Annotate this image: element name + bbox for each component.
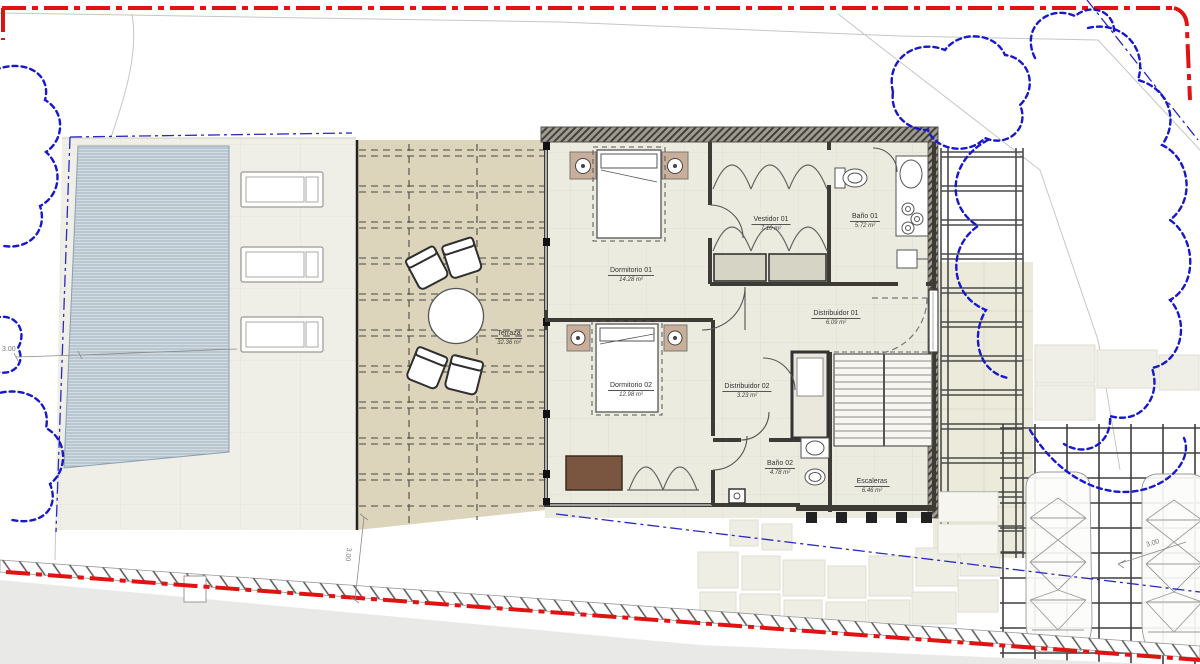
- plan-drawing: [0, 0, 1200, 664]
- room-name: Baño 02: [765, 460, 795, 469]
- gate-post: [184, 576, 206, 602]
- room-area: 6.46 m²: [855, 487, 890, 495]
- corridor-window: [929, 290, 938, 352]
- room-name: Dormitorio 01: [608, 267, 654, 276]
- house: [541, 127, 938, 523]
- tree-top-left: [0, 66, 60, 247]
- dimension-west: 3.00: [2, 346, 16, 353]
- room-area: 4.78 m²: [765, 469, 795, 477]
- room-name: Vestidor 01: [751, 216, 790, 225]
- room-name: Escaleras: [855, 478, 890, 487]
- garden-panels: [1035, 345, 1199, 420]
- room-name: Baño 01: [850, 213, 880, 222]
- site-plan-canvas: Terraza 32.36 m² Dormitorio 01 14.28 m² …: [0, 0, 1200, 664]
- room-area: 7.10 m²: [751, 225, 790, 233]
- north-wall: [541, 127, 938, 142]
- room-area: 32.36 m²: [495, 339, 522, 347]
- tree-bottom-left: [0, 391, 63, 521]
- room-area: 6.09 m²: [811, 319, 860, 327]
- sun-lounger-3: [241, 317, 323, 352]
- road-area: [0, 580, 1200, 664]
- room-name: Distribuidor 01: [811, 310, 860, 319]
- room-name: Distribuidor 02: [722, 383, 771, 392]
- pool: [64, 146, 229, 468]
- tree-left-mid: [0, 317, 21, 373]
- sun-lounger-1: [241, 172, 323, 207]
- room-area: 12.98 m²: [608, 391, 654, 399]
- stairs: [834, 352, 932, 446]
- room-area: 5.72 m²: [850, 222, 880, 230]
- pool-water: [64, 146, 229, 468]
- round-table: [429, 289, 484, 344]
- room-label-terraza: Terraza 32.36 m²: [495, 330, 522, 347]
- room-label-dormitorio-01: Dormitorio 01 14.28 m²: [608, 267, 654, 284]
- room-label-dormitorio-02: Dormitorio 02 12.98 m²: [608, 382, 654, 399]
- room-name: Dormitorio 02: [608, 382, 654, 391]
- room-label-distribuidor-01: Distribuidor 01 6.09 m²: [811, 310, 860, 327]
- tree-top-right-b: [1031, 10, 1114, 58]
- room-label-bano-02: Baño 02 4.78 m²: [765, 460, 795, 477]
- dimension-south: 3.00: [344, 547, 352, 561]
- dresser-dormitorio-02: [566, 456, 622, 490]
- room-name: Terraza: [495, 330, 522, 339]
- room-label-distribuidor-02: Distribuidor 02 3.23 m²: [722, 383, 771, 400]
- room-label-vestidor-01: Vestidor 01 7.10 m²: [751, 216, 790, 233]
- room-label-escaleras: Escaleras 6.46 m²: [855, 478, 890, 495]
- shower-block: [792, 352, 828, 438]
- room-area: 14.28 m²: [608, 276, 654, 284]
- room-area: 3.23 m²: [722, 392, 771, 400]
- armchair-4: [444, 355, 483, 396]
- room-label-bano-01: Baño 01 5.72 m²: [850, 213, 880, 230]
- car-2: [1142, 474, 1200, 654]
- sun-lounger-2: [241, 247, 323, 282]
- car-1: [1026, 472, 1092, 652]
